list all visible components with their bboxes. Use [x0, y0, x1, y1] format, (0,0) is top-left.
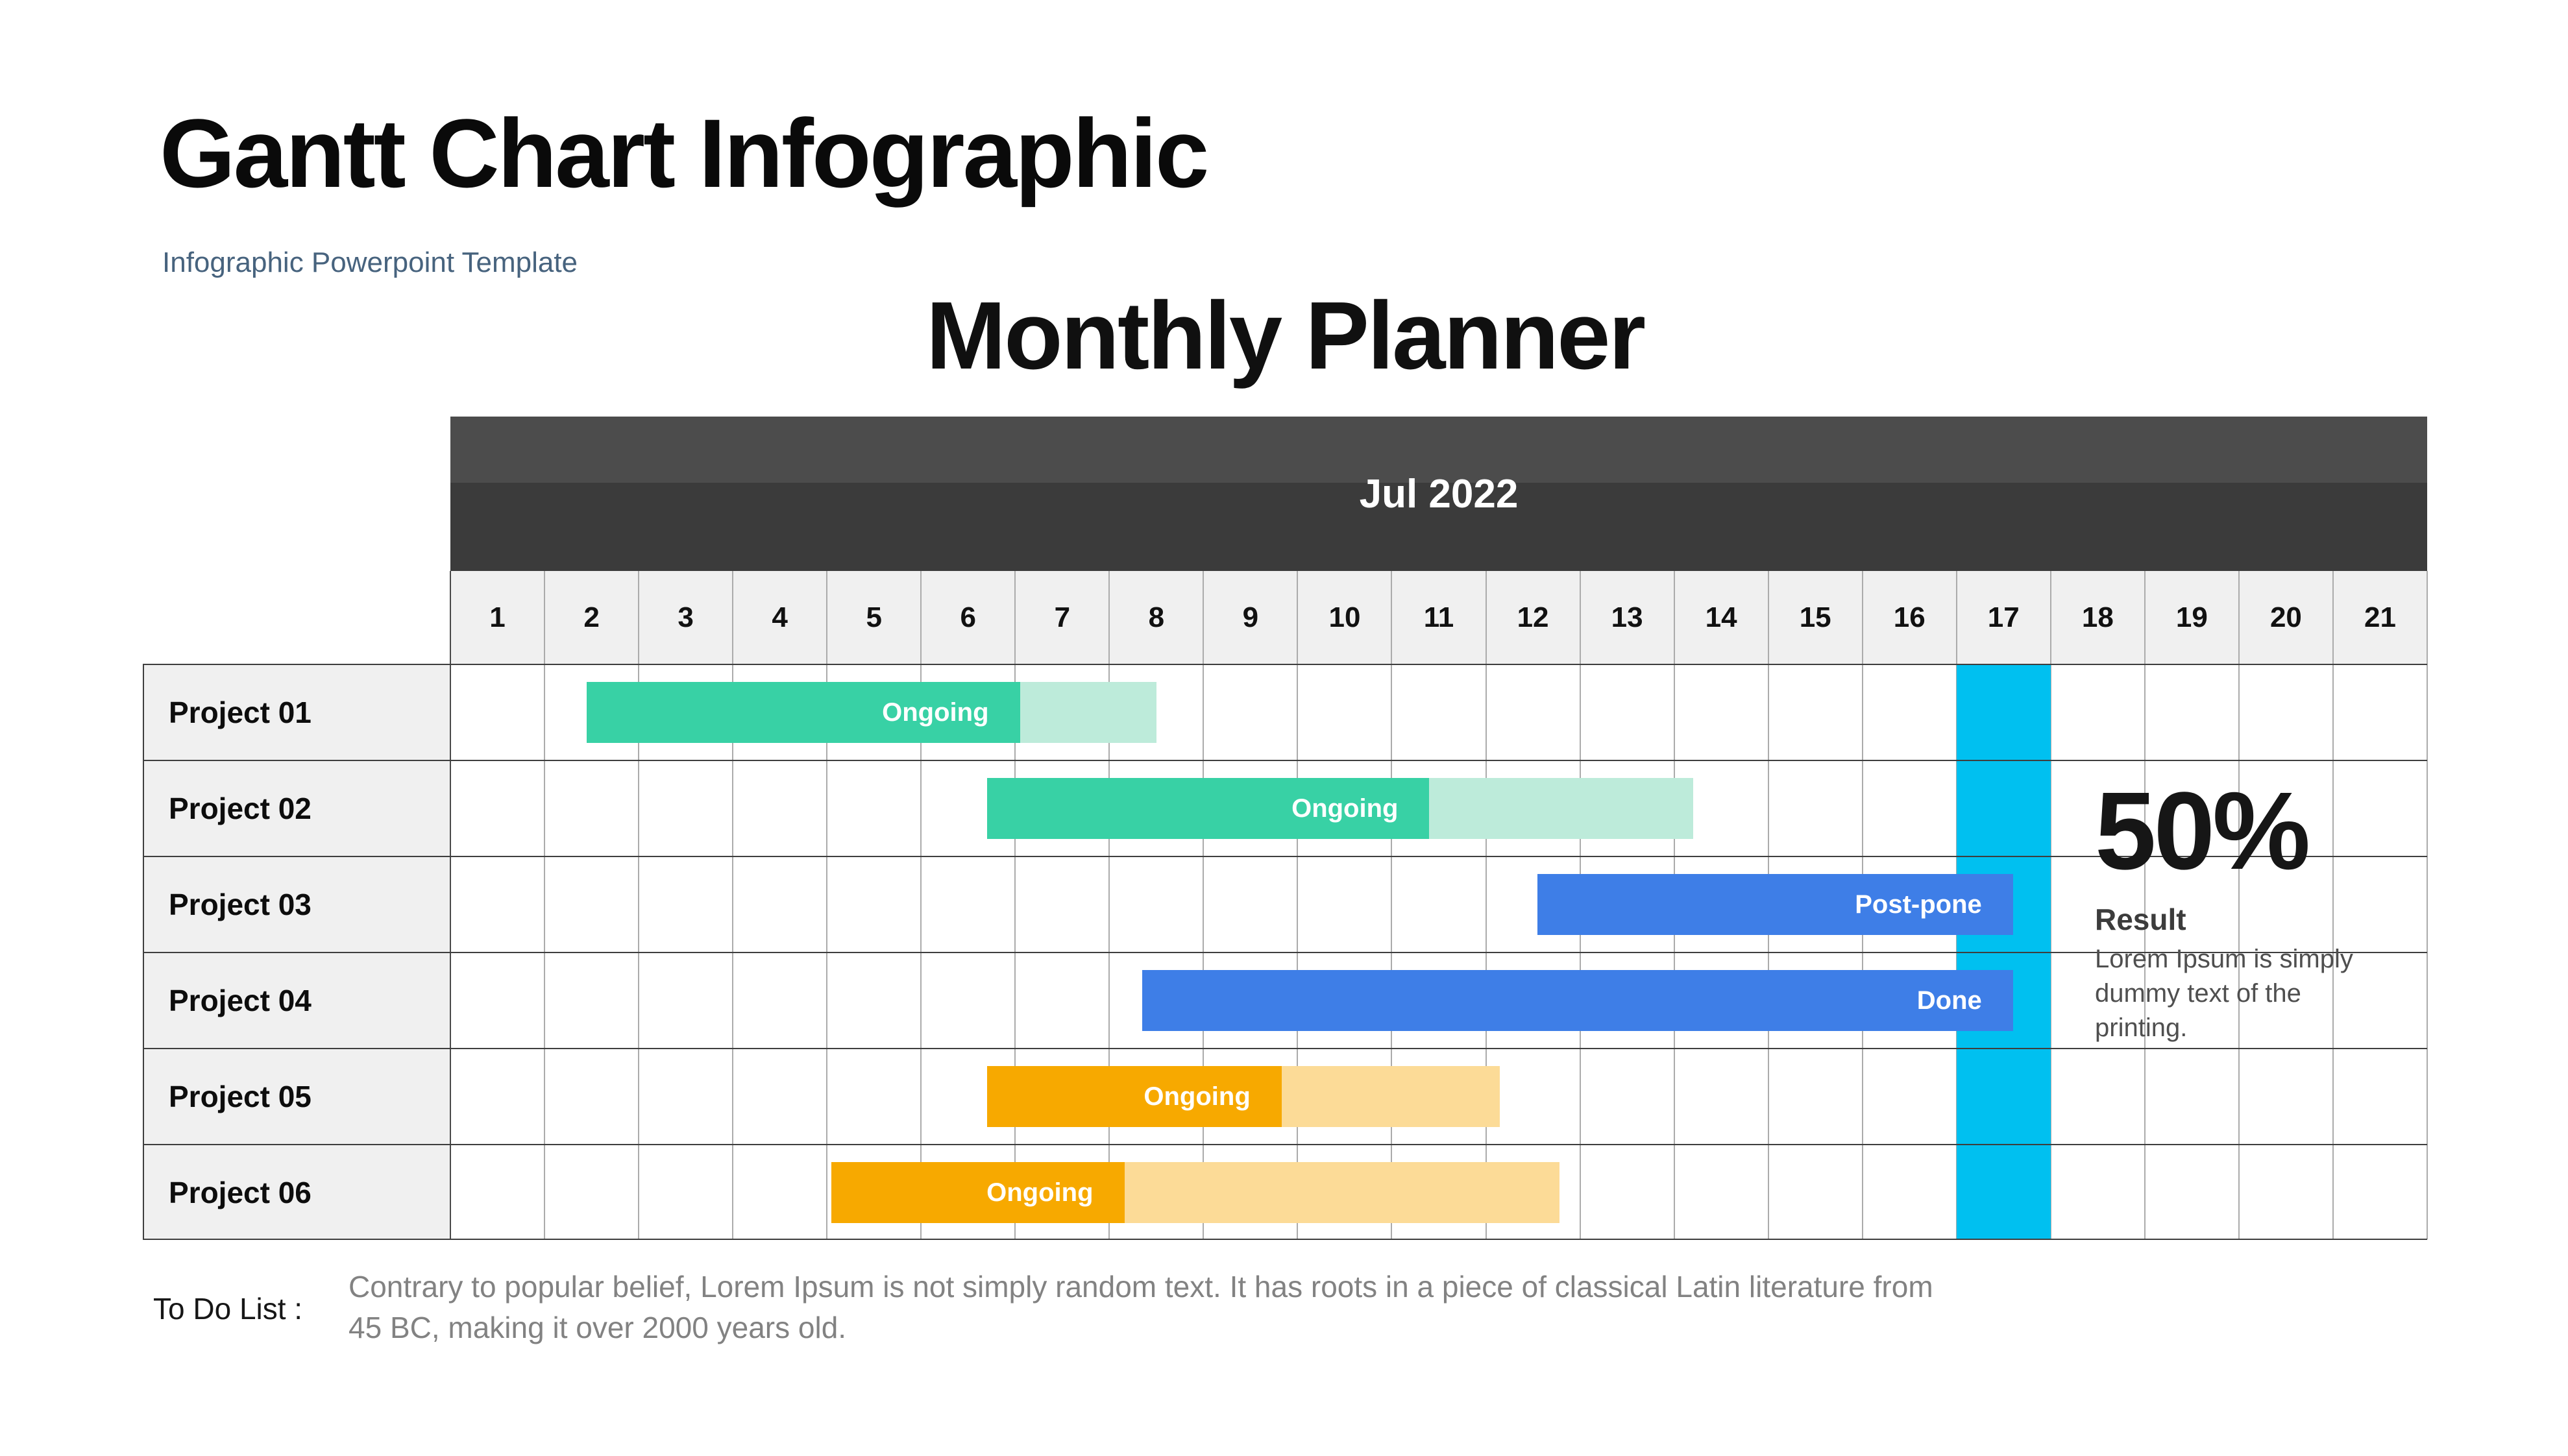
task-status-label: Ongoing: [986, 1162, 1093, 1223]
project-label: Project 05: [143, 1049, 450, 1145]
page-subtitle: Infographic Powerpoint Template: [162, 247, 578, 279]
task-bar-remainder: [1020, 682, 1156, 743]
gridline-vertical: [732, 571, 733, 1239]
result-title: Result: [2095, 902, 2400, 937]
gridline-vertical: [544, 571, 545, 1239]
project-label: Project 01: [143, 664, 450, 760]
task-status-label: Ongoing: [1291, 778, 1398, 839]
task-bar-remainder: [1282, 1066, 1500, 1127]
row-separator: [143, 1144, 2427, 1145]
day-label: 8: [1109, 571, 1203, 664]
gridline-vertical: [1203, 571, 1204, 1239]
gridline-vertical: [826, 571, 827, 1239]
gridline-vertical: [638, 571, 639, 1239]
day-label: 9: [1203, 571, 1297, 664]
result-block: 50% Result Lorem Ipsum is simply dummy t…: [2095, 776, 2400, 1045]
day-label: 18: [2051, 571, 2145, 664]
table-left-border: [143, 664, 144, 1239]
day-label: 2: [544, 571, 639, 664]
result-percent: 50%: [2095, 776, 2400, 886]
task-status-label: Post-pone: [1855, 874, 1982, 935]
row-separator: [143, 952, 2427, 953]
page-title: Gantt Chart Infographic: [160, 103, 1207, 205]
slide: Gantt Chart Infographic Infographic Powe…: [0, 0, 2568, 1456]
task-bar-remainder: [1429, 778, 1693, 839]
day-label: 20: [2239, 571, 2333, 664]
month-label: Jul 2022: [450, 417, 2427, 571]
gridline-vertical: [1391, 571, 1392, 1239]
day-label: 6: [921, 571, 1015, 664]
planner-title: Monthly Planner: [143, 288, 2427, 384]
result-text: Lorem Ipsum is simply dummy text of the …: [2095, 942, 2384, 1045]
task-bar: Done: [1142, 970, 2013, 1031]
todo-label: To Do List :: [153, 1291, 302, 1326]
month-header: Jul 2022: [450, 417, 2427, 571]
day-label: 17: [1957, 571, 2051, 664]
day-label: 5: [827, 571, 921, 664]
day-label: 10: [1297, 571, 1391, 664]
day-label: 15: [1768, 571, 1863, 664]
task-status-label: Ongoing: [1143, 1066, 1250, 1127]
row-separator: [143, 1239, 2427, 1240]
project-label: Project 06: [143, 1145, 450, 1241]
day-label: 19: [2145, 571, 2239, 664]
project-label: Project 02: [143, 760, 450, 856]
row-separator: [143, 664, 2427, 665]
task-bar: Ongoing: [587, 682, 1156, 743]
row-separator: [143, 1048, 2427, 1049]
gridline-vertical: [2427, 571, 2428, 1239]
day-label: 7: [1015, 571, 1109, 664]
gridline-vertical: [1297, 571, 1298, 1239]
gridline-vertical: [450, 571, 451, 1239]
task-bar: Ongoing: [987, 778, 1693, 839]
day-label: 16: [1863, 571, 1957, 664]
task-bar: Post-pone: [1537, 874, 2012, 935]
day-label: 3: [639, 571, 733, 664]
gridline-vertical: [1108, 571, 1110, 1239]
row-separator: [143, 856, 2427, 857]
day-label: 13: [1580, 571, 1674, 664]
day-label: 21: [2333, 571, 2427, 664]
task-bar: Ongoing: [987, 1066, 1500, 1127]
task-status-label: Ongoing: [882, 682, 988, 743]
day-label: 11: [1391, 571, 1486, 664]
task-bar-remainder: [1125, 1162, 1559, 1223]
task-status-label: Done: [1917, 970, 1982, 1031]
todo-text: Contrary to popular belief, Lorem Ipsum …: [349, 1267, 1951, 1349]
day-label: 14: [1674, 571, 1768, 664]
day-label: 1: [450, 571, 544, 664]
gridline-vertical: [920, 571, 922, 1239]
task-bar: Ongoing: [831, 1162, 1559, 1223]
project-label: Project 04: [143, 952, 450, 1049]
gridline-vertical: [1486, 571, 1487, 1239]
day-label: 4: [733, 571, 827, 664]
task-bar-progress: [1142, 970, 2013, 1031]
gantt-table: Jul 2022 1234567891011121314151617181920…: [143, 417, 2427, 1241]
row-separator: [143, 760, 2427, 761]
day-label: 12: [1486, 571, 1580, 664]
gridline-vertical: [1014, 571, 1016, 1239]
project-label: Project 03: [143, 856, 450, 952]
